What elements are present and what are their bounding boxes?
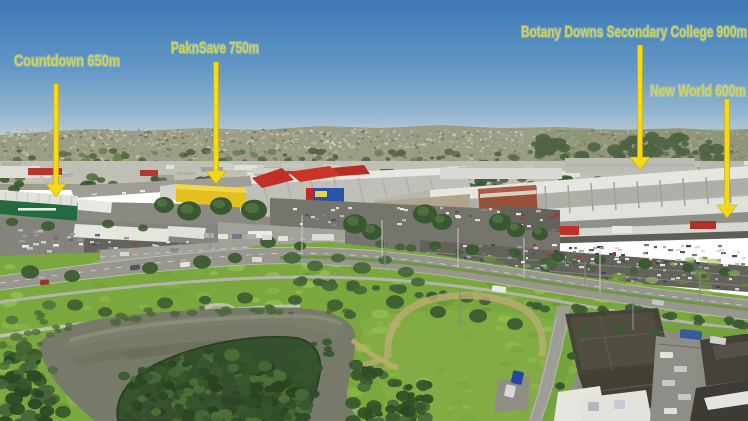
svg-text:New World 600m: New World 600m	[650, 83, 746, 100]
svg-text:Botany Downs Secondary College: Botany Downs Secondary College 900m	[521, 24, 747, 41]
svg-text:Countdown 650m: Countdown 650m	[14, 53, 120, 70]
svg-text:PaknSave 750m: PaknSave 750m	[171, 40, 259, 57]
